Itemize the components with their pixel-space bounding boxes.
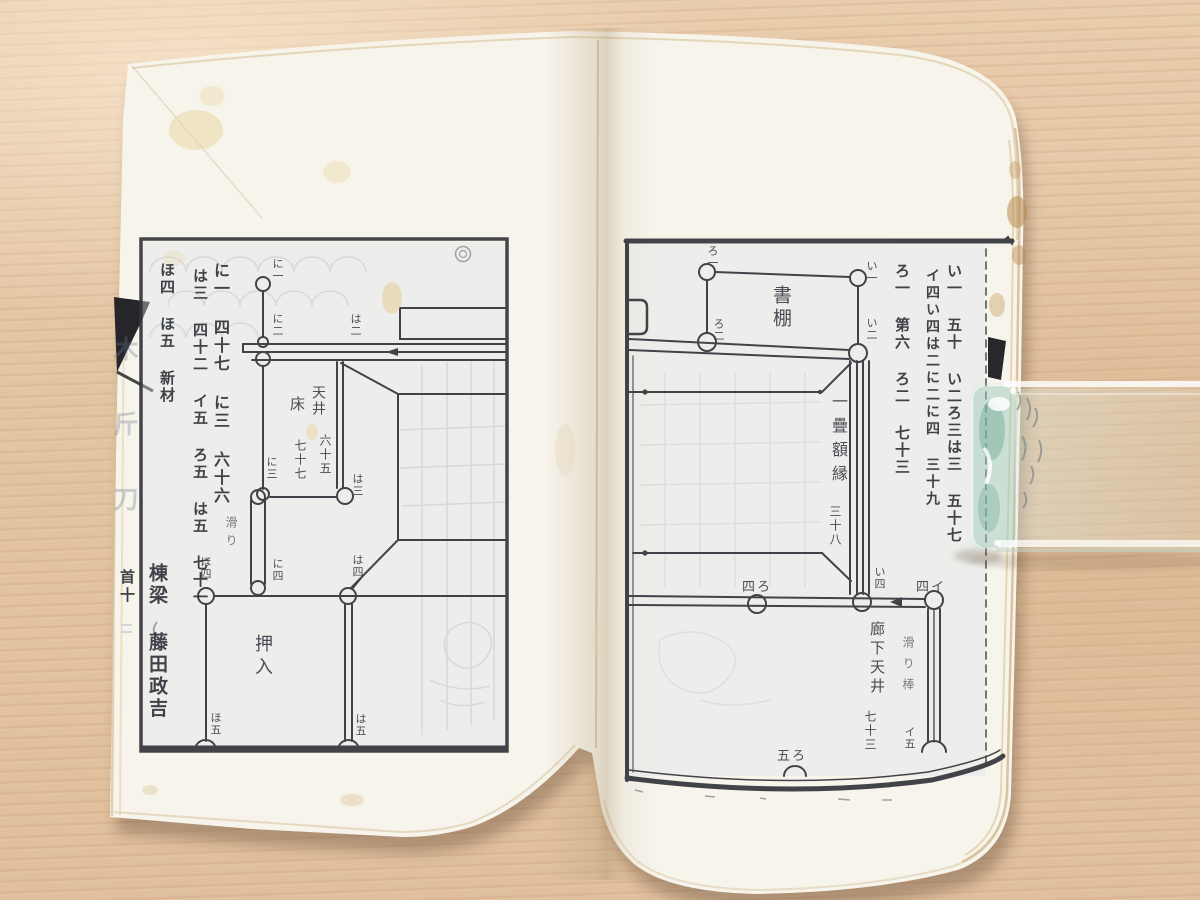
left-label-ni-3: に三 — [266, 456, 277, 480]
right-label-5-ro: 五ろ — [777, 750, 807, 763]
left-carpenter-signature: 棟梁 藤田政吉 — [147, 563, 166, 720]
left-label-suberi: 滑り — [225, 516, 237, 552]
right-label-4-i: 四イ — [916, 581, 946, 594]
left-label-toko: 床 — [289, 396, 304, 411]
right-label-sanjuhachi: 三十八 — [829, 505, 841, 547]
photo-stage: に一 四十七 に三 六十六は三 四十二 イ五 ろ五 は五 七十一ほ四 ほ五 新材… — [0, 0, 1200, 900]
right-label-ro-1: ろ一 — [707, 245, 718, 269]
right-label-suberi-bo: 滑り棒 — [902, 636, 914, 699]
left-fold-title-ghost: 木斤刀 — [112, 336, 137, 561]
left-label-oshiire: 押入 — [253, 634, 271, 680]
right-label-4-ro: 四ろ — [742, 581, 772, 594]
left-label-ni-1: に一 — [272, 258, 283, 282]
left-label-ha-2: は二 — [350, 313, 361, 337]
left-label-tenjo: 天井 — [311, 385, 325, 417]
right-label-i-5: イ五 — [904, 726, 915, 750]
left-page-mark: 首十 — [119, 569, 134, 605]
right-label-i-4: い四 — [874, 566, 885, 590]
left-label-ni-4: に四 — [272, 558, 283, 582]
right-margin-col-3: ろ一 第六 ろ二 七十三 — [894, 263, 909, 476]
right-label-ro-2: ろ二 — [713, 318, 724, 342]
left-margin-col-3: ほ四 ほ五 新材 — [159, 262, 174, 404]
book-scene — [0, 0, 1200, 900]
left-label-ha-3: は三 — [352, 473, 363, 497]
right-label-i-2: い二 — [866, 317, 877, 341]
right-label-roka-tenjo: 廊下天井 — [869, 621, 884, 697]
right-margin-col-2: イ四い四は二に二に四 三十九 — [925, 268, 939, 508]
left-label-rokujugo: 六十五 — [319, 434, 331, 476]
left-label-ha-5: は五 — [355, 713, 366, 737]
left-label-ha-4: は四 — [352, 554, 363, 578]
left-label-nanajunana: 七十七 — [294, 439, 306, 481]
left-label-ni-2: に二 — [272, 313, 283, 337]
left-margin-col-1: に一 四十七 に三 六十六 — [212, 262, 228, 505]
left-label-ho-5: ほ五 — [210, 712, 221, 736]
right-margin-col-1: い一 五十 い二ろ三は三 五十七 — [946, 263, 961, 544]
right-label-nanajusan: 七十三 — [864, 710, 876, 752]
right-label-i-1: い一 — [866, 260, 877, 284]
right-label-shodana: 書棚 — [771, 285, 790, 331]
left-label-ho-4: ほ四 — [200, 556, 211, 580]
right-label-gakubuchi: 一疊額縁 — [830, 393, 846, 489]
